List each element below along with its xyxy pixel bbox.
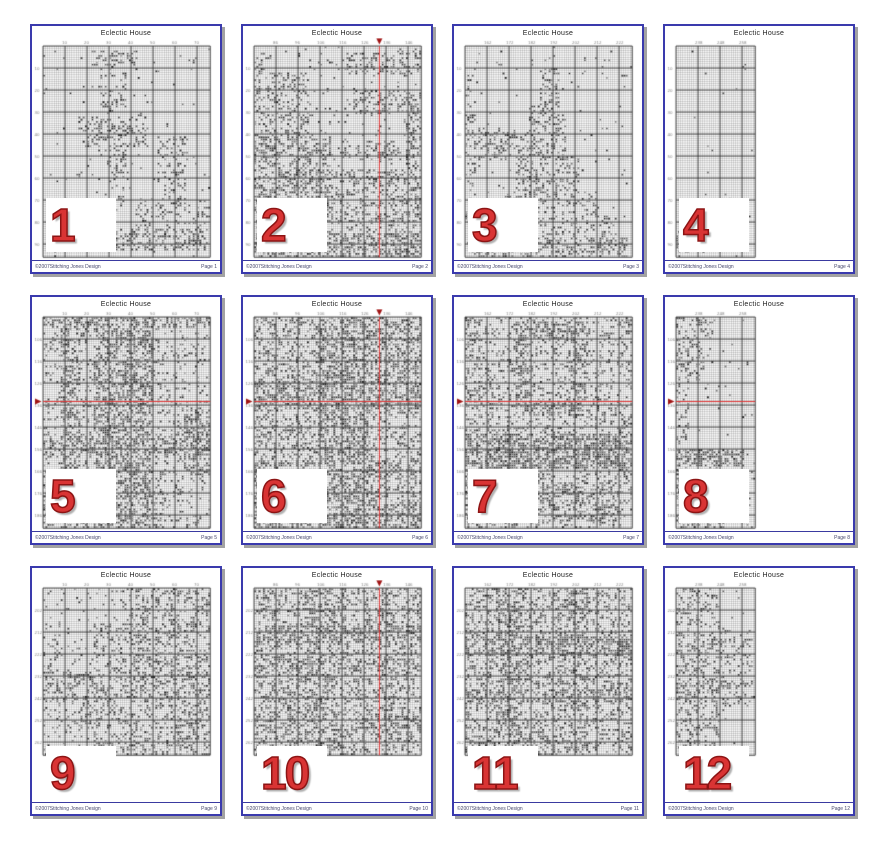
pattern-page-6[interactable]: Eclectic House6©2007Stitching Jones Desi… bbox=[241, 295, 433, 545]
page-label: Page 10 bbox=[409, 806, 428, 812]
copyright-text: ©2007Stitching Jones Design bbox=[35, 806, 101, 812]
chart-title: Eclectic House bbox=[454, 572, 642, 579]
page-number-label: 4 bbox=[683, 202, 707, 248]
stitch-grid-canvas bbox=[456, 580, 635, 758]
copyright-text: ©2007Stitching Jones Design bbox=[246, 535, 312, 541]
pattern-page-1[interactable]: Eclectic House1©2007Stitching Jones Desi… bbox=[30, 24, 222, 274]
pattern-page-3[interactable]: Eclectic House3©2007Stitching Jones Desi… bbox=[452, 24, 644, 274]
copyright-text: ©2007Stitching Jones Design bbox=[457, 264, 523, 270]
page-number-label: 1 bbox=[50, 202, 74, 248]
page-label: Page 6 bbox=[412, 535, 428, 541]
page-label: Page 3 bbox=[623, 264, 639, 270]
page-footer: ©2007Stitching Jones DesignPage 1 bbox=[32, 260, 220, 272]
page-number-label: 6 bbox=[261, 473, 285, 519]
chart-title: Eclectic House bbox=[32, 30, 220, 37]
page-label: Page 5 bbox=[201, 535, 217, 541]
pattern-page-9[interactable]: Eclectic House9©2007Stitching Jones Desi… bbox=[30, 566, 222, 816]
pattern-page-2[interactable]: Eclectic House2©2007Stitching Jones Desi… bbox=[241, 24, 433, 274]
page-label: Page 9 bbox=[201, 806, 217, 812]
chart-title: Eclectic House bbox=[454, 301, 642, 308]
chart-title: Eclectic House bbox=[243, 30, 431, 37]
copyright-text: ©2007Stitching Jones Design bbox=[35, 264, 101, 270]
chart-title: Eclectic House bbox=[665, 301, 853, 308]
copyright-text: ©2007Stitching Jones Design bbox=[668, 264, 734, 270]
page-number-overlay: 11 bbox=[468, 746, 538, 800]
copyright-text: ©2007Stitching Jones Design bbox=[668, 806, 734, 812]
page-footer: ©2007Stitching Jones DesignPage 7 bbox=[454, 531, 642, 543]
pattern-page-10[interactable]: Eclectic House10©2007Stitching Jones Des… bbox=[241, 566, 433, 816]
page-number-overlay: 8 bbox=[679, 469, 749, 523]
page-number-label: 8 bbox=[683, 473, 707, 519]
page-label: Page 1 bbox=[201, 264, 217, 270]
page-number-label: 2 bbox=[261, 202, 285, 248]
chart-title: Eclectic House bbox=[243, 301, 431, 308]
page-number-overlay: 6 bbox=[257, 469, 327, 523]
stitch-grid-canvas bbox=[245, 580, 424, 758]
page-number-overlay: 4 bbox=[679, 198, 749, 252]
page-footer: ©2007Stitching Jones DesignPage 9 bbox=[32, 802, 220, 814]
page-label: Page 11 bbox=[621, 806, 639, 812]
page-number-label: 12 bbox=[683, 750, 730, 796]
page-label: Page 2 bbox=[412, 264, 428, 270]
chart-title: Eclectic House bbox=[665, 30, 853, 37]
copyright-text: ©2007Stitching Jones Design bbox=[457, 806, 523, 812]
copyright-text: ©2007Stitching Jones Design bbox=[668, 535, 734, 541]
page-number-overlay: 10 bbox=[257, 746, 327, 800]
page-footer: ©2007Stitching Jones DesignPage 6 bbox=[243, 531, 431, 543]
page-number-overlay: 1 bbox=[46, 198, 116, 252]
pattern-page-5[interactable]: Eclectic House5©2007Stitching Jones Desi… bbox=[30, 295, 222, 545]
pattern-page-11[interactable]: Eclectic House11©2007Stitching Jones Des… bbox=[452, 566, 644, 816]
pattern-page-7[interactable]: Eclectic House7©2007Stitching Jones Desi… bbox=[452, 295, 644, 545]
pattern-page-4[interactable]: Eclectic House4©2007Stitching Jones Desi… bbox=[663, 24, 855, 274]
page-label: Page 8 bbox=[834, 535, 850, 541]
pattern-page-8[interactable]: Eclectic House8©2007Stitching Jones Desi… bbox=[663, 295, 855, 545]
copyright-text: ©2007Stitching Jones Design bbox=[246, 264, 312, 270]
page-footer: ©2007Stitching Jones DesignPage 5 bbox=[32, 531, 220, 543]
page-number-overlay: 12 bbox=[679, 746, 749, 800]
page-footer: ©2007Stitching Jones DesignPage 10 bbox=[243, 802, 431, 814]
stitch-grid-canvas bbox=[667, 580, 758, 758]
page-footer: ©2007Stitching Jones DesignPage 2 bbox=[243, 260, 431, 272]
page-label: Page 4 bbox=[834, 264, 850, 270]
copyright-text: ©2007Stitching Jones Design bbox=[457, 535, 523, 541]
page-number-overlay: 3 bbox=[468, 198, 538, 252]
page-number-overlay: 9 bbox=[46, 746, 116, 800]
page-number-label: 11 bbox=[472, 750, 517, 796]
page-label: Page 12 bbox=[831, 806, 850, 812]
page-footer: ©2007Stitching Jones DesignPage 3 bbox=[454, 260, 642, 272]
pattern-contact-sheet: Eclectic House1©2007Stitching Jones Desi… bbox=[0, 0, 876, 854]
page-number-label: 5 bbox=[50, 473, 74, 519]
chart-title: Eclectic House bbox=[243, 572, 431, 579]
stitch-grid-canvas bbox=[34, 580, 213, 758]
page-number-overlay: 2 bbox=[257, 198, 327, 252]
page-footer: ©2007Stitching Jones DesignPage 12 bbox=[665, 802, 853, 814]
copyright-text: ©2007Stitching Jones Design bbox=[35, 535, 101, 541]
chart-title: Eclectic House bbox=[665, 572, 853, 579]
page-number-label: 10 bbox=[261, 750, 308, 796]
page-footer: ©2007Stitching Jones DesignPage 11 bbox=[454, 802, 642, 814]
chart-title: Eclectic House bbox=[454, 30, 642, 37]
page-footer: ©2007Stitching Jones DesignPage 4 bbox=[665, 260, 853, 272]
page-number-overlay: 5 bbox=[46, 469, 116, 523]
pattern-page-12[interactable]: Eclectic House12©2007Stitching Jones Des… bbox=[663, 566, 855, 816]
chart-title: Eclectic House bbox=[32, 301, 220, 308]
page-number-label: 9 bbox=[50, 750, 74, 796]
page-number-overlay: 7 bbox=[468, 469, 538, 523]
page-label: Page 7 bbox=[623, 535, 639, 541]
copyright-text: ©2007Stitching Jones Design bbox=[246, 806, 312, 812]
page-number-label: 3 bbox=[472, 202, 496, 248]
chart-title: Eclectic House bbox=[32, 572, 220, 579]
page-footer: ©2007Stitching Jones DesignPage 8 bbox=[665, 531, 853, 543]
page-number-label: 7 bbox=[472, 473, 496, 519]
